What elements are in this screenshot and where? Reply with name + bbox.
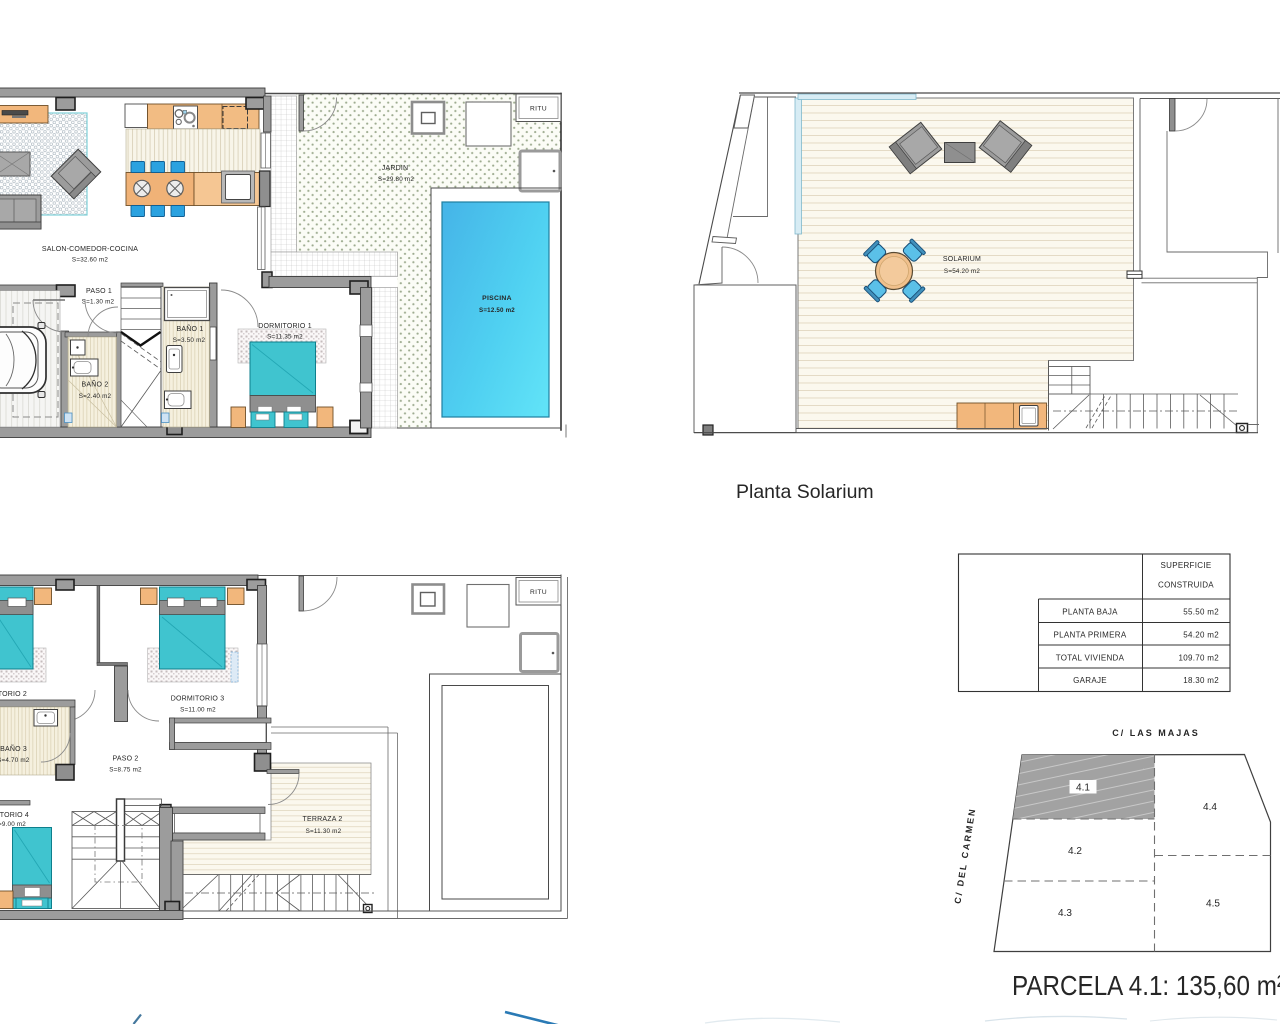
- svg-text:RITU: RITU: [530, 589, 547, 596]
- svg-text:JARDIN: JARDIN: [382, 165, 408, 172]
- svg-text:SALON-COMEDOR-COCINA: SALON-COMEDOR-COCINA: [42, 246, 138, 253]
- svg-text:TERRAZA 2: TERRAZA 2: [303, 816, 343, 823]
- svg-text:PASO 2: PASO 2: [113, 756, 139, 763]
- svg-text:DORMITORIO 2: DORMITORIO 2: [0, 691, 27, 698]
- svg-text:4.2: 4.2: [1068, 846, 1082, 857]
- svg-text:DORMITORIO 3: DORMITORIO 3: [171, 696, 225, 703]
- svg-text:PISCINA: PISCINA: [482, 295, 512, 302]
- svg-text:S=1.30 m2: S=1.30 m2: [82, 299, 115, 306]
- svg-text:S=4.70 m2: S=4.70 m2: [0, 757, 30, 764]
- svg-text:55.50 m2: 55.50 m2: [1183, 608, 1219, 617]
- svg-text:PLANTA BAJA: PLANTA BAJA: [1062, 608, 1118, 617]
- svg-text:S=29.80 m2: S=29.80 m2: [378, 176, 414, 183]
- svg-text:DORMITORIO 1: DORMITORIO 1: [258, 323, 312, 330]
- svg-text:Planta Solarium: Planta Solarium: [736, 481, 874, 503]
- svg-text:S=9.00 m2: S=9.00 m2: [0, 821, 26, 828]
- svg-text:PARCELA 4.1: 135,60 m²: PARCELA 4.1: 135,60 m²: [1012, 970, 1280, 1001]
- svg-text:S=11.30 m2: S=11.30 m2: [306, 828, 342, 835]
- svg-text:SUPERFICIE: SUPERFICIE: [1160, 561, 1211, 570]
- svg-text:54.20 m2: 54.20 m2: [1183, 631, 1219, 640]
- svg-text:SOLARIUM: SOLARIUM: [943, 256, 981, 263]
- svg-text:C/ LAS MAJAS: C/ LAS MAJAS: [1112, 728, 1200, 738]
- svg-text:S=12.50 m2: S=12.50 m2: [479, 307, 515, 314]
- svg-text:4.3: 4.3: [1058, 908, 1072, 919]
- svg-text:S=32.60 m2: S=32.60 m2: [72, 257, 108, 264]
- svg-text:S=11.35 m2: S=11.35 m2: [267, 334, 303, 341]
- svg-text:DORMITORIO 4: DORMITORIO 4: [0, 812, 29, 819]
- svg-text:PLANTA PRIMERA: PLANTA PRIMERA: [1054, 631, 1127, 640]
- svg-text:4.4: 4.4: [1203, 802, 1217, 813]
- svg-text:109.70 m2: 109.70 m2: [1178, 654, 1219, 663]
- svg-text:BAÑO 2: BAÑO 2: [82, 380, 109, 389]
- svg-text:BAÑO 1: BAÑO 1: [177, 324, 204, 333]
- svg-text:BAÑO 3: BAÑO 3: [0, 744, 27, 753]
- svg-text:S=8.75 m2: S=8.75 m2: [109, 767, 142, 774]
- svg-text:4.5: 4.5: [1206, 899, 1220, 910]
- svg-text:S=2.40 m2: S=2.40 m2: [79, 393, 112, 400]
- svg-text:S=11.00 m2: S=11.00 m2: [180, 707, 216, 714]
- svg-text:CONSTRUIDA: CONSTRUIDA: [1158, 581, 1214, 590]
- svg-text:PASO 1: PASO 1: [86, 288, 112, 295]
- svg-text:4.1: 4.1: [1076, 783, 1090, 794]
- svg-text:GARAJE: GARAJE: [1073, 676, 1107, 685]
- svg-text:S=3.50 m2: S=3.50 m2: [173, 337, 206, 344]
- svg-text:18.30 m2: 18.30 m2: [1183, 676, 1219, 685]
- svg-text:RITU: RITU: [530, 106, 547, 113]
- svg-text:S=54.20 m2: S=54.20 m2: [944, 268, 980, 275]
- svg-text:TOTAL VIVIENDA: TOTAL VIVIENDA: [1056, 654, 1125, 663]
